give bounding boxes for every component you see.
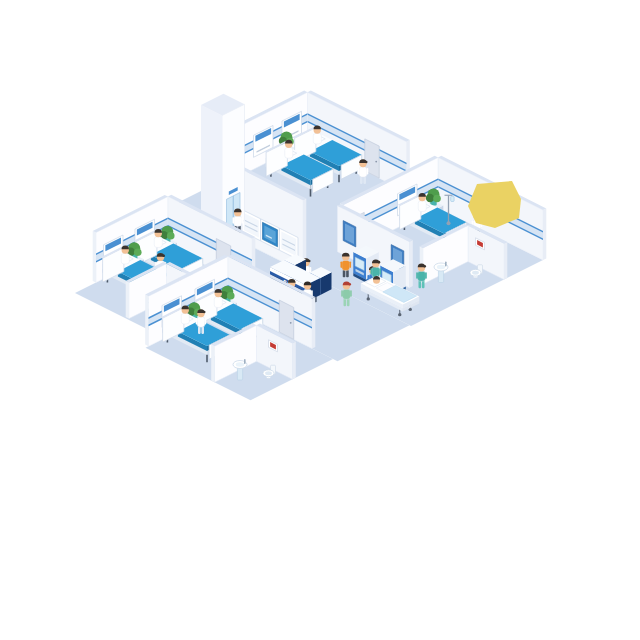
- hospital-illustration-canvas: PSN: [0, 0, 640, 640]
- hospital-floor-illustration: PSN: [0, 0, 640, 640]
